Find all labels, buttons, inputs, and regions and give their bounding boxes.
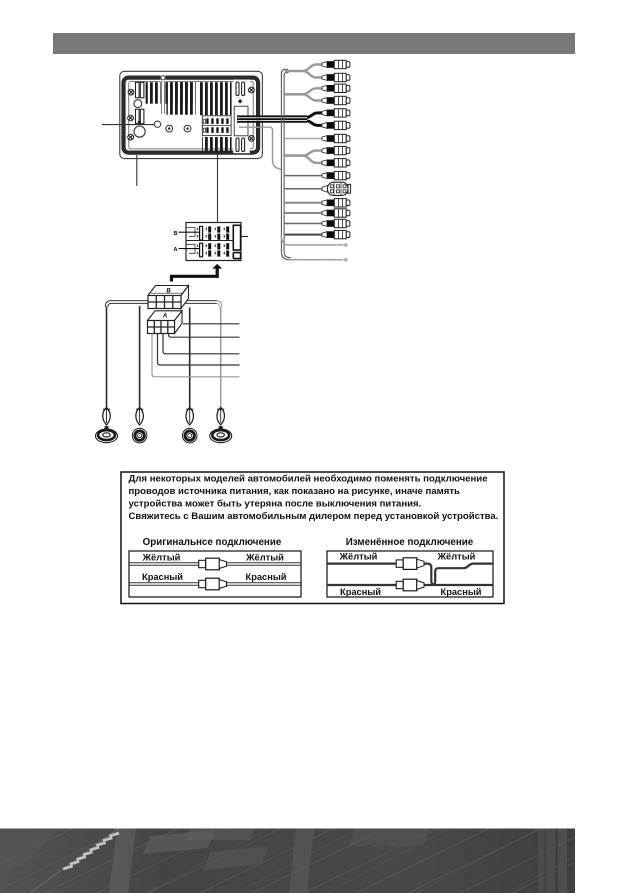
svg-text:Оригинальнсе подключение: Оригинальнсе подключение xyxy=(143,537,282,548)
svg-text:Жёлтый: Жёлтый xyxy=(339,551,378,561)
svg-text:Свяжитесь с Вашим автомобильны: Свяжитесь с Вашим автомобильным дилером … xyxy=(129,511,499,522)
svg-text:B: B xyxy=(166,288,171,294)
svg-text:Красный: Красный xyxy=(441,587,482,597)
svg-text:Жёлтый: Жёлтый xyxy=(437,551,476,561)
svg-text:A: A xyxy=(162,314,167,320)
svg-text:Жёлтый: Жёлтый xyxy=(245,552,284,562)
svg-text:Красный: Красный xyxy=(142,572,183,582)
svg-text:B: B xyxy=(173,231,177,237)
svg-text:Для некоторых моделей автомоби: Для некоторых моделей автомобилей необхо… xyxy=(129,474,488,485)
svg-text:устройства может быть утеряна: устройства может быть утеряна после выкл… xyxy=(129,499,422,510)
svg-text:A: A xyxy=(173,247,177,253)
svg-text:проводов источника питания, ка: проводов источника питания, как показано… xyxy=(129,486,461,497)
svg-text:Жёлтый: Жёлтый xyxy=(142,552,181,562)
svg-text:Изменённое подключение: Изменённое подключение xyxy=(346,537,474,548)
svg-text:Красный: Красный xyxy=(340,587,381,597)
svg-text:Красный: Красный xyxy=(246,572,287,582)
